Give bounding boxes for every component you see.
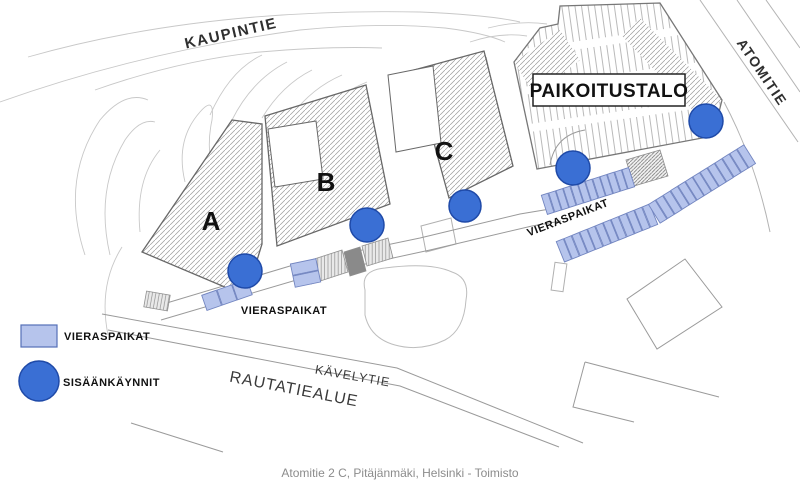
entrance-marker [228,254,262,288]
building-c-courtyard [388,66,441,152]
parking-garage-label: PAIKOITUSTALO [530,81,689,102]
visitor-parking-label-left: VIERASPAIKAT [241,305,327,317]
entrance-marker [449,190,481,222]
street-label-atomitie: ATOMITIE [734,36,791,109]
site-plan-svg: KAUPINTIE ATOMITIE KÄVELYTIE RAUTATIEALU… [0,0,800,489]
entrance-marker [689,104,723,138]
street-label-kavelytie: KÄVELYTIE [314,363,391,390]
entrance-marker [556,151,590,185]
visitor-parking-swatch [21,325,57,347]
building-b-label: B [317,167,336,197]
parking-garage-label-box: PAIKOITUSTALO [530,74,689,106]
bottom-road-lines [102,314,583,452]
outline-structures [364,218,722,422]
entrance-swatch [19,361,59,401]
legend: VIERASPAIKAT SISÄÄNKÄYNNIT [19,325,160,401]
building-b-courtyard [268,121,323,187]
legend-label-sisaankaynnit: SISÄÄNKÄYNNIT [63,376,160,389]
legend-label-vieraspaikat: VIERASPAIKAT [64,331,150,343]
caption: Atomitie 2 C, Pitäjänmäki, Helsinki - To… [281,466,519,480]
building-a-label: A [202,206,221,236]
street-label-kaupintie: KAUPINTIE [183,15,279,53]
entrance-marker [350,208,384,242]
building-c-label: C [435,136,454,166]
site-plan-image: KAUPINTIE ATOMITIE KÄVELYTIE RAUTATIEALU… [0,0,800,489]
